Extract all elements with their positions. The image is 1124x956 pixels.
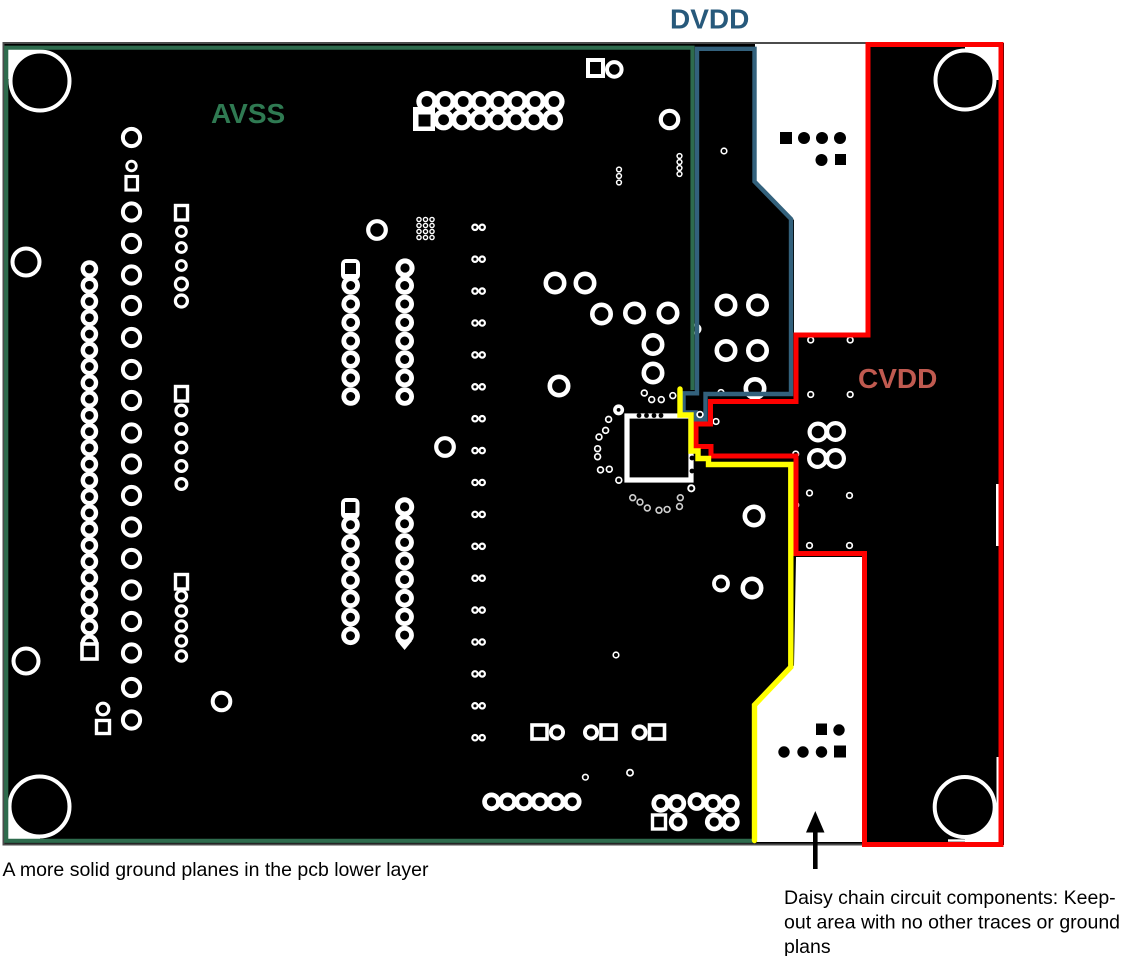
svg-text:A more solid ground planes in: A more solid ground planes in the pcb lo… [3, 859, 429, 881]
svg-text:AVSS: AVSS [211, 98, 285, 129]
svg-text:Daisy chain circuit components: Daisy chain circuit components: Keep- [784, 887, 1116, 909]
svg-text:CVDD: CVDD [858, 363, 937, 394]
svg-text:out area with no other traces: out area with no other traces or ground [784, 912, 1120, 934]
svg-text:DVDD: DVDD [670, 4, 749, 35]
svg-text:plans: plans [784, 936, 831, 956]
